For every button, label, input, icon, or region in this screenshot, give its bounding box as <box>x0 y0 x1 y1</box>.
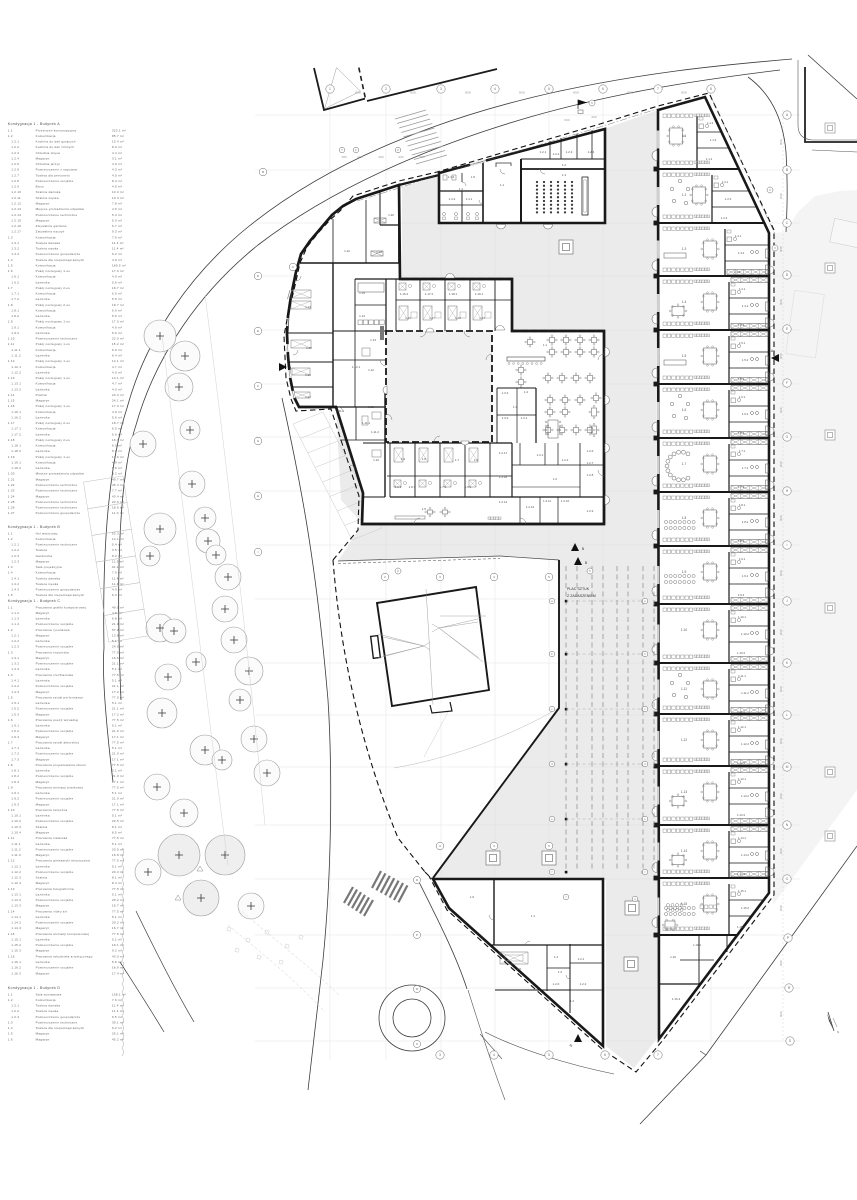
svg-text:6000: 6000 <box>564 119 570 122</box>
svg-text:9.2 m²: 9.2 m² <box>112 949 122 953</box>
svg-text:Komunikacja: Komunikacja <box>36 275 56 279</box>
svg-text:Chłodnia jarzyn: Chłodnia jarzyn <box>36 162 61 166</box>
svg-text:1.4.3: 1.4.3 <box>738 323 745 327</box>
svg-text:1.15.1: 1.15.1 <box>738 889 746 893</box>
svg-text:1.2.12: 1.2.12 <box>526 505 535 509</box>
svg-text:Toaleta dla personelu: Toaleta dla personelu <box>36 173 70 177</box>
svg-text:Łazienka: Łazienka <box>36 432 50 436</box>
svg-text:Pomieszczenie socjalne: Pomieszczenie socjalne <box>36 847 74 851</box>
svg-text:Pomieszczenie socjalne: Pomieszczenie socjalne <box>36 729 74 733</box>
svg-text:Toaleta damska: Toaleta damska <box>36 241 61 245</box>
svg-text:1.4: 1.4 <box>682 300 687 304</box>
svg-text:Pokój noclegowy 2-os: Pokój noclegowy 2-os <box>36 421 71 425</box>
svg-text:1.9.3: 1.9.3 <box>738 593 745 597</box>
svg-text:Pomieszczenie techniczne: Pomieszczenie techniczne <box>36 506 78 510</box>
svg-text:Komunikacja: Komunikacja <box>36 325 56 329</box>
svg-text:1.2.14: 1.2.14 <box>499 500 508 504</box>
svg-text:Łazienka: Łazienka <box>36 314 50 318</box>
svg-text:8.0 m²: 8.0 m² <box>112 145 122 149</box>
svg-text:11.0 m²: 11.0 m² <box>112 511 124 515</box>
svg-text:1.5: 1.5 <box>471 175 476 179</box>
svg-text:11.4 m²: 11.4 m² <box>112 1004 124 1008</box>
svg-text:25.1 m²: 25.1 m² <box>112 1032 124 1036</box>
svg-text:5.6 m²: 5.6 m² <box>112 449 122 453</box>
svg-text:1.4.2: 1.4.2 <box>11 582 19 586</box>
svg-text:57.2 m²: 57.2 m² <box>112 628 124 632</box>
svg-text:Komunikacja: Komunikacja <box>36 348 56 352</box>
svg-text:1.10.1: 1.10.1 <box>738 615 746 619</box>
svg-text:4.5 m²: 4.5 m² <box>112 173 122 177</box>
svg-text:5: 5 <box>548 87 550 91</box>
svg-text:1.6.2: 1.6.2 <box>11 280 19 284</box>
svg-text:1.9: 1.9 <box>682 570 687 574</box>
svg-text:1.18.1: 1.18.1 <box>11 444 21 448</box>
svg-text:10.3 m²: 10.3 m² <box>112 190 124 194</box>
svg-text:1.1.2: 1.1.2 <box>707 121 714 125</box>
svg-text:15.2 m²: 15.2 m² <box>112 342 124 346</box>
svg-text:1.3: 1.3 <box>8 650 13 654</box>
svg-text:4.0 m²: 4.0 m² <box>112 387 122 391</box>
svg-text:1.3: 1.3 <box>513 405 518 409</box>
svg-text:1.6: 1.6 <box>682 408 687 412</box>
svg-text:1.2.1: 1.2.1 <box>11 633 19 637</box>
svg-text:8000: 8000 <box>779 353 783 359</box>
svg-text:43.0 m²: 43.0 m² <box>112 954 124 958</box>
svg-text:8.5 m²: 8.5 m² <box>112 831 122 835</box>
svg-text:17.2 m²: 17.2 m² <box>112 690 124 694</box>
svg-text:A: A <box>289 365 292 370</box>
svg-text:11.4 m²: 11.4 m² <box>112 241 124 245</box>
svg-text:1.5.3: 1.5.3 <box>738 377 745 381</box>
svg-text:Pomieszczenie gospodarcze: Pomieszczenie gospodarcze <box>36 252 81 256</box>
svg-text:Łazienka: Łazienka <box>36 387 50 391</box>
svg-text:4.9 m²: 4.9 m² <box>112 460 122 464</box>
svg-text:1.2.16: 1.2.16 <box>499 475 508 479</box>
svg-text:5.1 m²: 5.1 m² <box>112 814 122 818</box>
svg-text:1.3.3: 1.3.3 <box>11 252 19 256</box>
svg-text:1.10.3: 1.10.3 <box>11 825 21 829</box>
svg-text:16.9 m²: 16.9 m² <box>112 966 124 970</box>
svg-text:3: 3 <box>439 1053 441 1057</box>
svg-text:1.1: 1.1 <box>8 992 13 996</box>
svg-text:1.25: 1.25 <box>306 346 312 350</box>
svg-text:17.2 m²: 17.2 m² <box>112 712 124 716</box>
svg-text:1.1: 1.1 <box>531 914 536 918</box>
svg-text:11.4 m²: 11.4 m² <box>112 582 124 586</box>
svg-text:Szatnia męska: Szatnia męska <box>36 196 59 200</box>
svg-text:1.2.10: 1.2.10 <box>11 190 21 194</box>
svg-text:9.3 m²: 9.3 m² <box>112 230 122 234</box>
svg-text:1.8.3: 1.8.3 <box>738 539 745 543</box>
svg-text:N: N <box>837 1031 839 1034</box>
svg-text:1.12: 1.12 <box>368 368 374 372</box>
svg-text:Pracownia rysunkowa: Pracownia rysunkowa <box>36 628 70 632</box>
svg-text:77.5 m²: 77.5 m² <box>112 650 124 654</box>
svg-text:Łazienka: Łazienka <box>36 617 50 621</box>
svg-text:17.1 m²: 17.1 m² <box>112 735 124 739</box>
svg-text:77.5 m²: 77.5 m² <box>112 909 124 913</box>
svg-text:1.12.1: 1.12.1 <box>11 365 21 369</box>
svg-text:1.3.2: 1.3.2 <box>11 247 19 251</box>
svg-text:1.2.2: 1.2.2 <box>562 458 569 462</box>
svg-text:17.1 m²: 17.1 m² <box>112 780 124 784</box>
svg-text:1.1: 1.1 <box>543 343 548 347</box>
svg-text:4.9 m²: 4.9 m² <box>112 258 122 262</box>
svg-text:6.9 m²: 6.9 m² <box>112 348 122 352</box>
svg-text:77.5 m²: 77.5 m² <box>112 763 124 767</box>
svg-text:45.2 m²: 45.2 m² <box>112 1037 124 1041</box>
svg-text:Łazienka: Łazienka <box>36 354 50 358</box>
svg-text:1.7.1: 1.7.1 <box>11 746 19 750</box>
svg-text:1.8: 1.8 <box>422 457 427 461</box>
svg-text:1.3.1: 1.3.1 <box>11 656 19 660</box>
svg-text:Łazienka: Łazienka <box>36 915 50 919</box>
svg-text:15.4 m²: 15.4 m² <box>112 140 124 144</box>
svg-text:1.4.1: 1.4.1 <box>11 678 19 682</box>
svg-text:Komunikacja: Komunikacja <box>36 571 56 575</box>
svg-text:6: 6 <box>602 87 604 91</box>
svg-text:1.10.2: 1.10.2 <box>741 632 749 636</box>
svg-text:11.4 m²: 11.4 m² <box>112 1009 124 1013</box>
svg-text:Pomieszczenie socjalne: Pomieszczenie socjalne <box>36 921 74 925</box>
svg-text:Pomieszczenie socjalne: Pomieszczenie socjalne <box>36 645 74 649</box>
svg-text:Pracownia rękodzieła artystycz: Pracownia rękodzieła artystycznego <box>36 954 93 958</box>
svg-text:Pomieszczenie socjalne: Pomieszczenie socjalne <box>36 898 74 902</box>
svg-text:Pokój noclegowy 1-os: Pokój noclegowy 1-os <box>36 359 71 363</box>
svg-text:1.2.16: 1.2.16 <box>11 224 21 228</box>
svg-text:1.2: 1.2 <box>8 998 13 1002</box>
svg-text:1.7: 1.7 <box>682 462 687 466</box>
svg-text:1.13.1: 1.13.1 <box>738 777 746 781</box>
svg-text:Pomieszczenie gospodarcze: Pomieszczenie gospodarcze <box>36 1015 81 1019</box>
svg-text:1.5: 1.5 <box>8 263 13 267</box>
svg-text:20.2 m²: 20.2 m² <box>112 921 124 925</box>
svg-text:5.6 m²: 5.6 m² <box>112 432 122 436</box>
svg-text:Przestrzeń konsumpcyjna: Przestrzeń konsumpcyjna <box>36 128 77 132</box>
svg-text:322.1 m²: 322.1 m² <box>112 128 126 132</box>
svg-text:Pracownia snycerska: Pracownia snycerska <box>36 650 70 654</box>
svg-text:1.6.3: 1.6.3 <box>11 735 19 739</box>
svg-text:1.9.1: 1.9.1 <box>11 791 19 795</box>
svg-text:1.8.2: 1.8.2 <box>11 774 19 778</box>
svg-text:1.18.1: 1.18.1 <box>449 292 458 296</box>
svg-text:1.11.1: 1.11.1 <box>738 674 746 678</box>
svg-text:1.2.1: 1.2.1 <box>11 140 19 144</box>
svg-text:Kondygnacja 1 - Budynek C: Kondygnacja 1 - Budynek C <box>8 599 61 603</box>
svg-text:1.14.1: 1.14.1 <box>738 836 746 840</box>
svg-text:Pokój noclegowy 1-os: Pokój noclegowy 1-os <box>36 320 71 324</box>
svg-text:1.5: 1.5 <box>517 967 522 971</box>
svg-text:1.6.1: 1.6.1 <box>11 275 19 279</box>
svg-text:1.9.2: 1.9.2 <box>11 331 19 335</box>
svg-text:1.11.1: 1.11.1 <box>11 842 21 846</box>
svg-text:1.10.2: 1.10.2 <box>11 819 21 823</box>
svg-text:8000: 8000 <box>627 91 633 95</box>
svg-text:5.1 m²: 5.1 m² <box>112 678 122 682</box>
svg-text:1.2.7: 1.2.7 <box>587 461 594 465</box>
svg-text:1.2: 1.2 <box>8 628 13 632</box>
svg-text:5.1 m²: 5.1 m² <box>112 724 122 728</box>
svg-text:P: P <box>416 933 418 937</box>
svg-text:1.5: 1.5 <box>8 593 13 597</box>
svg-text:Magazyn: Magazyn <box>36 156 50 160</box>
svg-text:8000: 8000 <box>779 848 783 854</box>
svg-text:77.5 m²: 77.5 m² <box>112 836 124 840</box>
svg-text:Komunikacja: Komunikacja <box>36 410 56 414</box>
svg-text:1.27: 1.27 <box>305 395 311 399</box>
svg-text:5000: 5000 <box>419 156 425 159</box>
svg-text:1.2.9: 1.2.9 <box>11 185 19 189</box>
svg-text:1.6.3: 1.6.3 <box>738 431 745 435</box>
svg-text:Chłodnia mięsa: Chłodnia mięsa <box>36 151 61 155</box>
svg-text:1.2.3: 1.2.3 <box>11 554 19 558</box>
svg-text:Pomieszczenie techniczne: Pomieszczenie techniczne <box>36 1020 78 1024</box>
svg-text:1.12.2: 1.12.2 <box>11 370 21 374</box>
svg-text:Toaleta damska: Toaleta damska <box>36 576 61 580</box>
svg-text:1.9: 1.9 <box>8 785 13 789</box>
svg-text:1.12.1: 1.12.1 <box>738 725 746 729</box>
svg-text:1.10.3: 1.10.3 <box>737 651 745 655</box>
svg-text:1.2.8: 1.2.8 <box>587 473 594 477</box>
svg-text:17.0 m²: 17.0 m² <box>112 404 124 408</box>
svg-text:8000: 8000 <box>779 738 783 744</box>
svg-text:5.1 m²: 5.1 m² <box>112 791 122 795</box>
svg-text:1.2.2: 1.2.2 <box>11 548 19 552</box>
svg-text:1.22: 1.22 <box>8 483 15 487</box>
svg-text:1.26: 1.26 <box>8 506 15 510</box>
svg-text:Magazyn: Magazyn <box>36 218 50 222</box>
svg-text:1.6: 1.6 <box>8 718 13 722</box>
svg-text:Sala projekcyjna: Sala projekcyjna <box>36 565 62 569</box>
svg-text:1.1.2: 1.1.2 <box>11 611 19 615</box>
svg-text:1.15.2: 1.15.2 <box>741 906 749 910</box>
svg-text:4.9 m²: 4.9 m² <box>112 275 122 279</box>
svg-text:4.7 m²: 4.7 m² <box>112 365 122 369</box>
svg-text:L: L <box>786 713 788 717</box>
svg-text:1.15: 1.15 <box>359 291 365 295</box>
svg-text:Magazyn: Magazyn <box>36 494 50 498</box>
svg-text:1.3: 1.3 <box>562 173 567 177</box>
svg-text:Pomieszczenie socjalne: Pomieszczenie socjalne <box>36 870 74 874</box>
svg-text:Kuchnia do dań gorących: Kuchnia do dań gorących <box>36 140 76 144</box>
svg-text:Pokój noclegowy 1-os: Pokój noclegowy 1-os <box>36 404 71 408</box>
svg-text:1.21: 1.21 <box>8 477 15 481</box>
svg-text:3: 3 <box>440 87 442 91</box>
svg-text:3.1 m²: 3.1 m² <box>112 156 122 160</box>
svg-text:21.0 m²: 21.0 m² <box>112 752 124 756</box>
svg-text:2000: 2000 <box>398 156 404 159</box>
svg-text:Łazienka: Łazienka <box>36 892 50 896</box>
svg-text:1.14.1: 1.14.1 <box>11 915 21 919</box>
svg-text:1.2.8: 1.2.8 <box>11 179 19 183</box>
svg-text:6: 6 <box>604 1053 606 1057</box>
svg-text:1.2.11: 1.2.11 <box>543 499 551 503</box>
svg-text:8000: 8000 <box>779 905 783 911</box>
svg-text:Magazyn: Magazyn <box>36 971 50 975</box>
svg-text:6.0 m²: 6.0 m² <box>112 308 122 312</box>
svg-text:20.5 m²: 20.5 m² <box>112 819 124 823</box>
svg-text:1.7.2: 1.7.2 <box>742 466 749 470</box>
svg-text:1.11: 1.11 <box>8 836 15 840</box>
svg-text:4.9 m²: 4.9 m² <box>112 185 122 189</box>
svg-text:1.2.12: 1.2.12 <box>11 201 21 205</box>
svg-text:Kondygnacja 1 - Budynek A: Kondygnacja 1 - Budynek A <box>8 122 60 126</box>
svg-text:1.10: 1.10 <box>681 628 687 632</box>
svg-text:1.14.3: 1.14.3 <box>11 926 21 930</box>
svg-text:Toaleta męska: Toaleta męska <box>36 582 59 586</box>
svg-text:1.2.3: 1.2.3 <box>566 150 573 154</box>
svg-text:21.1 m²: 21.1 m² <box>112 684 124 688</box>
svg-text:Pokój noclegowy 2-os: Pokój noclegowy 2-os <box>36 303 71 307</box>
svg-text:77.5 m²: 77.5 m² <box>112 887 124 891</box>
svg-text:8000: 8000 <box>779 793 783 799</box>
svg-text:21.1 m²: 21.1 m² <box>112 662 124 666</box>
svg-text:Łazienka: Łazienka <box>36 937 50 941</box>
svg-text:2000: 2000 <box>591 116 597 119</box>
svg-text:1.23: 1.23 <box>8 489 15 493</box>
svg-text:Łazienka: Łazienka <box>36 791 50 795</box>
svg-text:1.14: 1.14 <box>359 314 365 318</box>
svg-text:Komunikacja: Komunikacja <box>36 365 56 369</box>
svg-text:1.19.1: 1.19.1 <box>475 292 484 296</box>
svg-text:5.6 m²: 5.6 m² <box>112 297 122 301</box>
svg-text:1.10: 1.10 <box>373 458 379 462</box>
svg-text:1.4.2: 1.4.2 <box>11 684 19 688</box>
svg-text:Toaleta męska: Toaleta męska <box>36 1009 59 1013</box>
svg-text:Pomieszczenie socjalne: Pomieszczenie socjalne <box>36 943 74 947</box>
svg-text:4.3 m²: 4.3 m² <box>112 168 122 172</box>
svg-text:Komunikacja: Komunikacja <box>36 134 56 138</box>
svg-text:1.16.1: 1.16.1 <box>11 960 21 964</box>
svg-text:5.1 m²: 5.1 m² <box>112 937 122 941</box>
svg-text:5.6 m²: 5.6 m² <box>112 280 122 284</box>
svg-text:1.13.3: 1.13.3 <box>737 813 745 817</box>
svg-text:1.5: 1.5 <box>8 1032 13 1036</box>
svg-text:1.7.1: 1.7.1 <box>11 292 19 296</box>
svg-text:1.13.1: 1.13.1 <box>11 382 21 386</box>
svg-text:1.2.3: 1.2.3 <box>11 559 19 563</box>
svg-text:2435: 2435 <box>357 156 363 159</box>
svg-text:Pomieszczenie z napojami: Pomieszczenie z napojami <box>36 168 78 172</box>
svg-text:1.7: 1.7 <box>8 286 13 290</box>
svg-text:1.16.3: 1.16.3 <box>672 997 681 1001</box>
svg-text:1.2.4: 1.2.4 <box>588 150 595 154</box>
svg-text:1.3.2: 1.3.2 <box>11 662 19 666</box>
svg-text:1.2.13: 1.2.13 <box>11 207 21 211</box>
svg-text:Z ZADASZENIEM: Z ZADASZENIEM <box>567 594 596 598</box>
svg-text:1.11: 1.11 <box>8 342 15 346</box>
svg-text:Komunikacja: Komunikacja <box>36 444 56 448</box>
svg-text:Szatnia: Szatnia <box>36 876 48 880</box>
svg-text:18.7 m²: 18.7 m² <box>112 303 124 307</box>
svg-text:1.11.3: 1.11.3 <box>11 853 21 857</box>
svg-text:8000: 8000 <box>410 91 416 95</box>
svg-text:21.0 m²: 21.0 m² <box>112 797 124 801</box>
svg-text:1.18: 1.18 <box>8 438 15 442</box>
svg-text:4.7 m²: 4.7 m² <box>112 382 122 386</box>
svg-text:1.7.2: 1.7.2 <box>11 297 19 301</box>
svg-text:4.0 m²: 4.0 m² <box>112 162 122 166</box>
svg-text:1.4.3: 1.4.3 <box>11 588 19 592</box>
svg-text:Pokój noclegowy 2-os: Pokój noclegowy 2-os <box>36 286 71 290</box>
svg-text:1.2.14: 1.2.14 <box>11 213 21 217</box>
svg-text:16.8 m²: 16.8 m² <box>112 853 124 857</box>
svg-text:49.5 m²: 49.5 m² <box>112 605 124 609</box>
svg-text:Pracownia animacji piaskowej: Pracownia animacji piaskowej <box>36 785 83 789</box>
svg-text:18.7 m²: 18.7 m² <box>112 286 124 290</box>
svg-text:Magazyn: Magazyn <box>36 881 50 885</box>
svg-text:O: O <box>786 877 789 881</box>
svg-text:1.10: 1.10 <box>8 337 15 341</box>
svg-text:1.1: 1.1 <box>500 183 505 187</box>
svg-text:1.17: 1.17 <box>429 316 435 320</box>
svg-text:23.0 m²: 23.0 m² <box>112 500 124 504</box>
svg-text:Pracownia grafiki komputerowej: Pracownia grafiki komputerowej <box>36 605 87 609</box>
svg-text:PLAC SZTUK: PLAC SZTUK <box>567 587 590 591</box>
svg-text:8000: 8000 <box>779 1011 783 1017</box>
svg-text:22.0 m²: 22.0 m² <box>112 337 124 341</box>
svg-text:Magazyn: Magazyn <box>36 633 50 637</box>
svg-text:F: F <box>257 384 259 388</box>
svg-text:Toaleta dla niepełnosprawnych: Toaleta dla niepełnosprawnych <box>36 258 85 262</box>
svg-text:21.0 m²: 21.0 m² <box>112 622 124 626</box>
svg-text:1.11.2: 1.11.2 <box>371 430 379 434</box>
svg-text:16.7 m²: 16.7 m² <box>112 926 124 930</box>
svg-text:1.10: 1.10 <box>8 808 15 812</box>
svg-text:43.4 m²: 43.4 m² <box>112 494 124 498</box>
svg-text:Pracownia taneczna: Pracownia taneczna <box>36 808 68 812</box>
svg-text:1.1.4: 1.1.4 <box>706 157 713 161</box>
svg-text:4: 4 <box>493 1053 495 1057</box>
svg-text:21.0 m²: 21.0 m² <box>112 729 124 733</box>
svg-text:45.4 m²: 45.4 m² <box>112 483 124 487</box>
svg-text:D: D <box>416 878 418 882</box>
svg-text:1.2.1: 1.2.1 <box>537 453 544 457</box>
svg-text:5.1 m²: 5.1 m² <box>112 639 122 643</box>
svg-text:1.3.1: 1.3.1 <box>11 241 19 245</box>
svg-text:1.3: 1.3 <box>8 1020 13 1024</box>
svg-text:Pokój noclegowy 1-os: Pokój noclegowy 1-os <box>36 455 71 459</box>
svg-text:1.9.2: 1.9.2 <box>742 574 749 578</box>
svg-text:Komunikacja: Komunikacja <box>36 382 56 386</box>
svg-text:1.17: 1.17 <box>8 421 15 425</box>
svg-text:Toaleta męska: Toaleta męska <box>36 247 59 251</box>
svg-text:1.7.1: 1.7.1 <box>739 449 746 453</box>
svg-text:Garderoba: Garderoba <box>36 554 53 558</box>
svg-text:Kuchnia do dań zimnych: Kuchnia do dań zimnych <box>36 145 75 149</box>
svg-text:9.2 m²: 9.2 m² <box>112 472 122 476</box>
svg-text:1.4.3: 1.4.3 <box>448 175 455 179</box>
svg-text:1.15: 1.15 <box>681 902 687 906</box>
svg-text:17.1 m²: 17.1 m² <box>112 802 124 806</box>
svg-text:6.0 m²: 6.0 m² <box>112 292 122 296</box>
svg-text:1.13.1: 1.13.1 <box>11 892 21 896</box>
svg-text:23.3 m²: 23.3 m² <box>112 393 124 397</box>
svg-text:1.5: 1.5 <box>422 507 427 511</box>
svg-text:Łazienka: Łazienka <box>36 370 50 374</box>
svg-text:5.6 m²: 5.6 m² <box>112 331 122 335</box>
svg-text:1.6.1: 1.6.1 <box>739 395 746 399</box>
svg-text:Magazyn: Magazyn <box>36 201 50 205</box>
svg-text:Łazienka: Łazienka <box>36 466 50 470</box>
svg-text:1.2.2: 1.2.2 <box>11 145 19 149</box>
svg-text:1.8.3: 1.8.3 <box>11 780 19 784</box>
svg-text:8000: 8000 <box>355 91 361 95</box>
svg-text:8000: 8000 <box>519 91 525 95</box>
svg-text:Łazienka: Łazienka <box>36 701 50 705</box>
svg-text:J: J <box>786 599 788 603</box>
svg-text:8.4 m²: 8.4 m² <box>112 881 122 885</box>
